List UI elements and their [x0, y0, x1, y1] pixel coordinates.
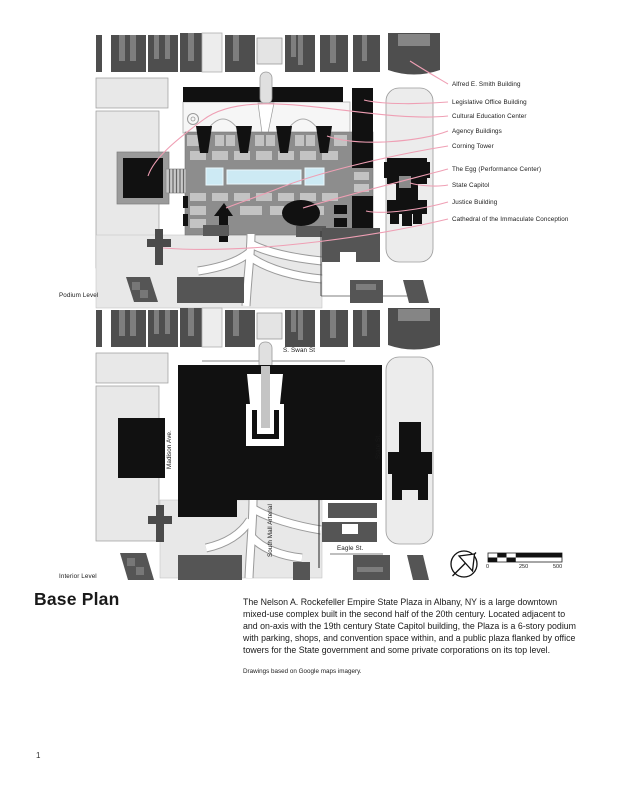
drawing-sheet: Alfred E. Smith Building Legislative Off…: [0, 0, 618, 800]
legend-label: Legislative Office Building: [452, 99, 527, 106]
page-number: 1: [36, 751, 40, 760]
scale-tick-250: 250: [519, 564, 528, 570]
legend-label: Alfred E. Smith Building: [452, 81, 521, 88]
street-label-swan: S. Swan St: [283, 347, 315, 354]
legend-label: State Capitol: [452, 182, 489, 189]
street-label-arterial: South Mall Arterial: [267, 504, 274, 557]
street-label-eagle: Eagle St.: [337, 545, 363, 552]
site-plan-graphics: [0, 0, 618, 800]
legend-label: Justice Building: [452, 199, 497, 206]
legend-label: Agency Buildings: [452, 128, 502, 135]
street-label-madison: Madison Ave.: [166, 430, 173, 469]
north-arrow-icon: [451, 551, 477, 577]
interior-level-caption: Interior Level: [59, 573, 97, 580]
legend-label: The Egg (Performance Center): [452, 166, 541, 173]
project-description: The Nelson A. Rockefeller Empire State P…: [243, 596, 581, 656]
legend-label: Cultural Education Center: [452, 113, 527, 120]
street-label-state: State St.: [375, 434, 382, 459]
scale-tick-500: 500: [553, 564, 562, 570]
podium-level-caption: Podium Level: [59, 292, 98, 299]
scale-bar: [488, 553, 562, 562]
podium-level-map: [96, 33, 440, 308]
legend-label: Corning Tower: [452, 143, 494, 150]
credit-line: Drawings based on Google maps imagery.: [243, 668, 362, 675]
scale-tick-0: 0: [486, 564, 489, 570]
legend-label: Cathedral of the Immaculate Conception: [452, 216, 569, 223]
sheet-title: Base Plan: [34, 589, 119, 610]
